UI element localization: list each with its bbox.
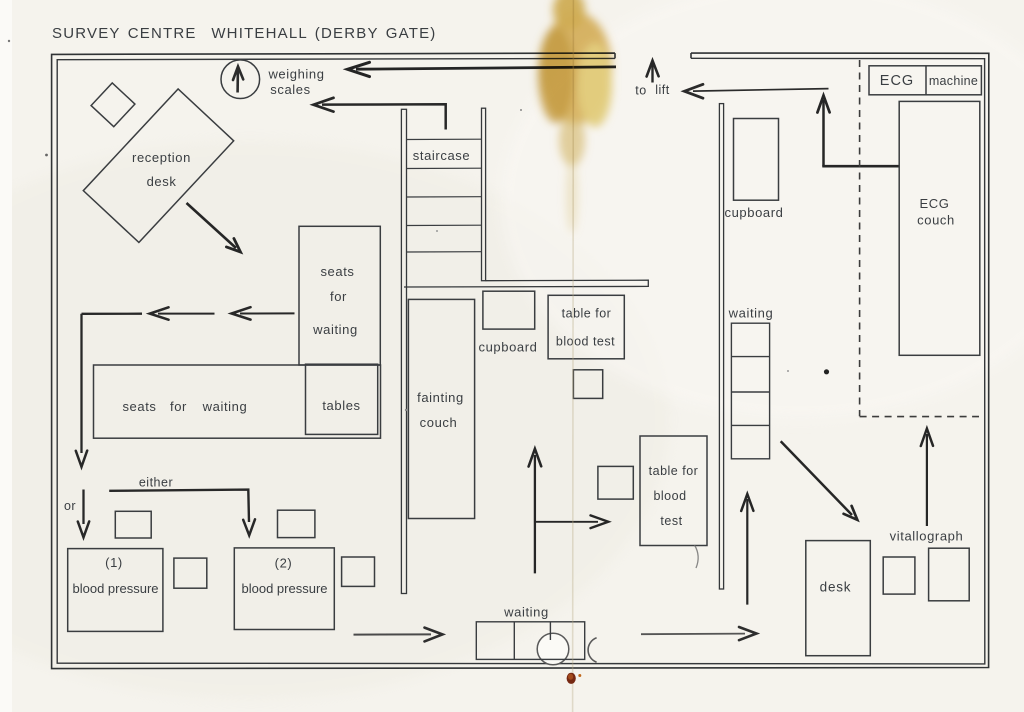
svg-text:waiting: waiting [312, 322, 358, 337]
svg-text:test: test [660, 514, 682, 528]
svg-text:machine: machine [929, 74, 978, 88]
svg-text:couch: couch [420, 415, 458, 430]
svg-text:seats: seats [122, 399, 156, 414]
svg-text:ECG: ECG [880, 73, 914, 89]
svg-text:(1): (1) [105, 555, 123, 570]
svg-text:either: either [139, 476, 173, 490]
svg-text:(2): (2) [275, 556, 293, 571]
svg-text:fainting: fainting [417, 390, 464, 405]
svg-text:table for: table for [649, 464, 699, 478]
svg-text:blood test: blood test [556, 335, 615, 349]
svg-text:lift: lift [655, 83, 670, 97]
svg-text:couch: couch [917, 213, 955, 228]
svg-text:reception: reception [132, 150, 191, 165]
svg-text:scales: scales [270, 82, 310, 97]
svg-text:waiting: waiting [503, 605, 549, 620]
svg-text:weighing: weighing [267, 67, 324, 82]
svg-text:for: for [330, 289, 347, 304]
svg-text:table for: table for [562, 307, 612, 321]
svg-text:to: to [635, 84, 646, 98]
svg-text:cupboard: cupboard [724, 205, 783, 220]
svg-text:tables: tables [322, 398, 360, 413]
svg-text:cupboard: cupboard [478, 340, 537, 355]
svg-text:vitallograph: vitallograph [890, 529, 964, 544]
svg-text:desk: desk [147, 174, 177, 189]
svg-text:or: or [64, 499, 76, 513]
svg-text:blood: blood [653, 489, 686, 503]
svg-text:waiting: waiting [728, 306, 774, 321]
svg-text:waiting: waiting [202, 399, 248, 414]
svg-text:desk: desk [820, 580, 852, 595]
svg-text:for: for [170, 399, 187, 414]
svg-text:seats: seats [320, 264, 354, 279]
svg-text:ECG: ECG [920, 196, 950, 211]
svg-text:SURVEY CENTRE WHITEHALL (DERB: SURVEY CENTRE WHITEHALL (DERBY GATE) [52, 25, 436, 42]
svg-text:blood pressure: blood pressure [242, 581, 328, 596]
svg-text:staircase: staircase [413, 148, 470, 163]
svg-text:blood pressure: blood pressure [73, 581, 159, 596]
